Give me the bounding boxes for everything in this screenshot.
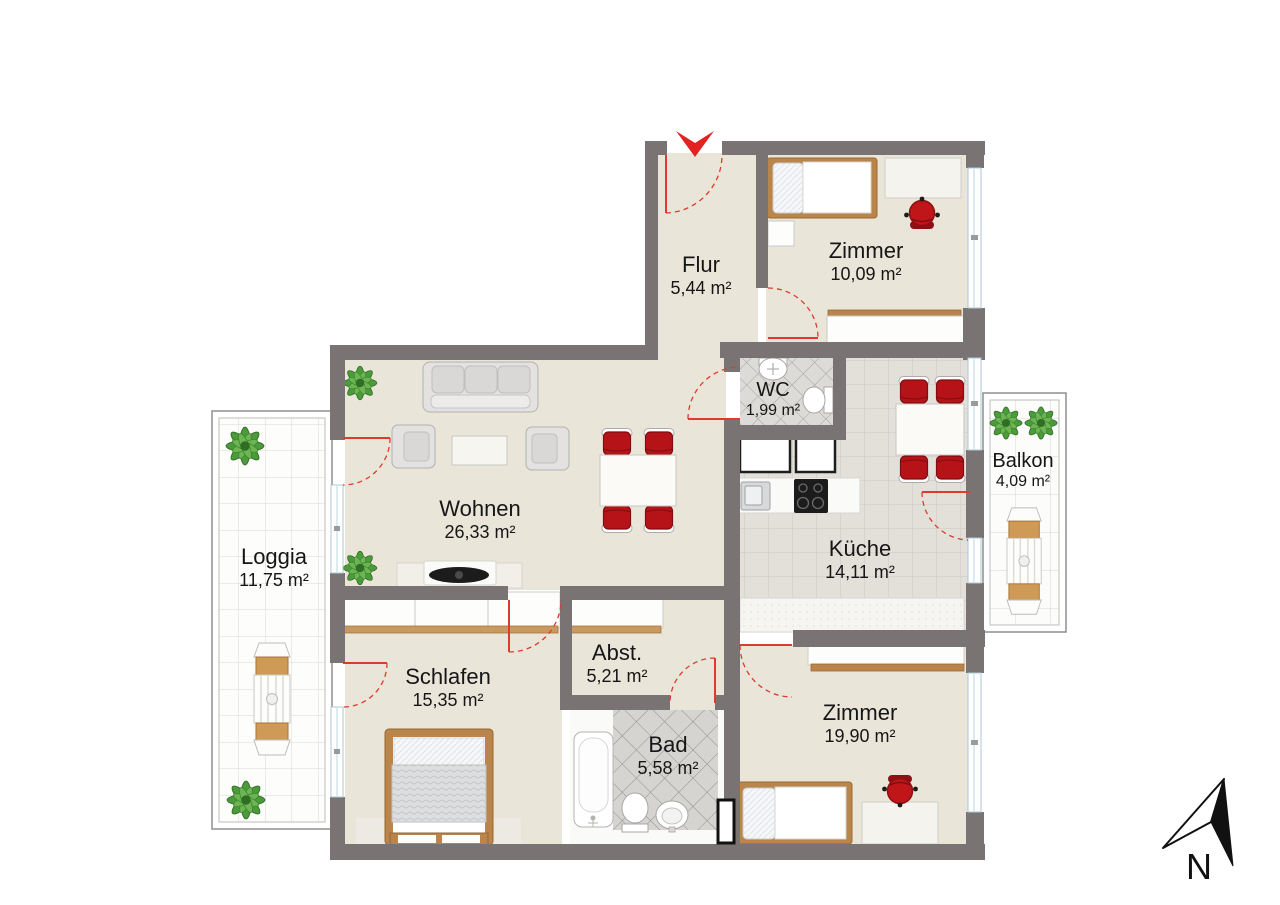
- chair: [935, 377, 965, 404]
- room-label-bad: Bad 5,58 m²: [637, 732, 698, 779]
- room-name: Bad: [637, 732, 698, 757]
- room-name: Loggia: [239, 544, 309, 569]
- toilet: [622, 793, 648, 832]
- room-label-zimmer-unten: Zimmer 19,90 m²: [823, 700, 898, 747]
- armchair: [526, 427, 569, 470]
- room-area: 10,09 m²: [829, 263, 904, 285]
- room-area: 15,35 m²: [405, 689, 491, 711]
- balcony-door: [968, 538, 981, 583]
- plant: [227, 781, 265, 819]
- cooktop: [794, 479, 828, 513]
- chair: [935, 456, 965, 483]
- plant: [226, 427, 264, 465]
- room-area: 5,21 m²: [586, 665, 647, 687]
- balkon-area: [983, 393, 1066, 632]
- window: [968, 673, 981, 812]
- wc-sink: [759, 358, 787, 380]
- plant: [990, 407, 1022, 439]
- kitchen-counter: [738, 478, 860, 513]
- kitchen-appliances: [740, 437, 835, 472]
- wc-toilet: [803, 387, 833, 413]
- sun-lounger: [254, 643, 290, 755]
- chair: [644, 506, 674, 533]
- room-area: 5,58 m²: [637, 757, 698, 779]
- room-area: 5,44 m²: [670, 277, 731, 299]
- coffee-table: [452, 436, 507, 465]
- floor-plan: Flur 5,44 m² Zimmer 10,09 m² WC 1,99 m² …: [0, 0, 1280, 905]
- desk: [885, 158, 961, 198]
- room-area: 11,75 m²: [239, 569, 309, 591]
- sun-lounger: [1007, 508, 1041, 614]
- bathtub: [574, 732, 613, 827]
- bed-double: [385, 729, 493, 845]
- window: [968, 168, 981, 308]
- room-area: 1,99 m²: [746, 401, 800, 420]
- bed-single-top: [767, 158, 877, 218]
- north-label: N: [1186, 846, 1212, 888]
- kitchen-counter-lower: [740, 598, 964, 632]
- window: [968, 358, 981, 450]
- plant: [343, 366, 377, 400]
- room-label-balkon: Balkon 4,09 m²: [992, 450, 1053, 491]
- room-area: 26,33 m²: [439, 521, 521, 543]
- room-name: Küche: [825, 536, 895, 561]
- room-area: 19,90 m²: [823, 725, 898, 747]
- room-label-schlafen: Schlafen 15,35 m²: [405, 664, 491, 711]
- room-label-zimmer-oben: Zimmer 10,09 m²: [829, 238, 904, 285]
- room-label-kueche: Küche 14,11 m²: [825, 536, 895, 583]
- plant: [343, 551, 377, 585]
- chair: [899, 456, 929, 483]
- sofa: [423, 362, 538, 412]
- loggia-area: [212, 411, 332, 829]
- room-label-loggia: Loggia 11,75 m²: [239, 544, 309, 591]
- armchair: [392, 425, 435, 468]
- wardrobe: [827, 310, 966, 344]
- room-name: Abst.: [586, 640, 647, 665]
- room-name: Wohnen: [439, 496, 521, 521]
- window: [331, 485, 343, 573]
- room-name: Zimmer: [829, 238, 904, 263]
- room-name: Schlafen: [405, 664, 491, 689]
- room-label-wc: WC 1,99 m²: [746, 379, 800, 420]
- room-label-wohnen: Wohnen 26,33 m²: [439, 496, 521, 543]
- room-area: 14,11 m²: [825, 561, 895, 583]
- shaft: [718, 800, 734, 843]
- room-name: Balkon: [992, 450, 1053, 472]
- room-name: Flur: [670, 252, 731, 277]
- room-area: 4,09 m²: [992, 472, 1053, 491]
- chair: [602, 429, 632, 456]
- tv-sideboard: [397, 561, 522, 588]
- chair: [899, 377, 929, 404]
- chair: [644, 429, 674, 456]
- nightstand: [768, 221, 794, 246]
- room-name: WC: [746, 379, 800, 401]
- window: [331, 707, 343, 797]
- room-label-abstellraum: Abst. 5,21 m²: [586, 640, 647, 687]
- room-label-flur: Flur 5,44 m²: [670, 252, 731, 299]
- chair: [602, 506, 632, 533]
- room-name: Zimmer: [823, 700, 898, 725]
- plant: [1025, 407, 1057, 439]
- desk: [862, 802, 938, 844]
- bed-single-bottom: [737, 782, 852, 844]
